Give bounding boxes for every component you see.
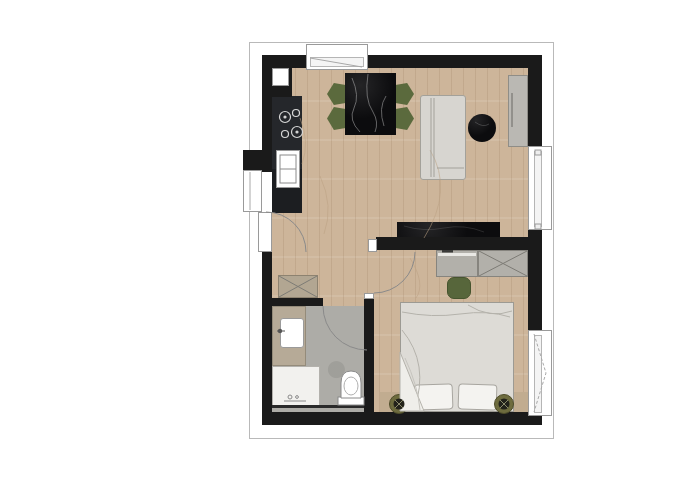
wall-right-upper	[528, 55, 542, 148]
sideboard	[508, 75, 528, 147]
living-window-sash	[534, 151, 542, 227]
left-window	[243, 170, 262, 212]
entry-door-opening	[258, 212, 272, 252]
wall-top-b	[368, 55, 542, 68]
bed-pillow	[458, 383, 498, 410]
bed-pillow	[414, 383, 454, 410]
wall-left-lower	[262, 252, 272, 412]
wall-bottom	[262, 412, 542, 425]
wardrobe	[478, 250, 528, 277]
top-window-sash	[310, 57, 364, 67]
media-bench	[397, 222, 500, 238]
door-jamb	[364, 293, 374, 299]
dining-table	[345, 73, 396, 135]
floor-plan	[0, 0, 700, 500]
top-window	[306, 44, 368, 70]
bedside-lamp	[494, 394, 514, 414]
shower	[272, 366, 320, 406]
wall-left-protrusion	[243, 150, 272, 172]
pouf	[447, 277, 471, 299]
coffee-table	[468, 114, 496, 142]
desk-top-strip	[438, 253, 476, 256]
bathroom-door-leaf	[364, 310, 372, 352]
bedside-lamp	[389, 394, 409, 414]
wall-living-bedroom	[376, 237, 528, 250]
wall-right-middle	[528, 228, 542, 330]
door-jamb	[368, 239, 377, 252]
sofa	[420, 95, 466, 180]
kitchen-sink	[276, 150, 300, 188]
bedroom-window	[528, 330, 552, 416]
utility-shaft	[272, 68, 289, 86]
washbasin	[280, 318, 304, 348]
hall-wardrobe	[278, 275, 318, 298]
living-window	[528, 146, 552, 230]
wall-bathroom-top	[262, 298, 323, 306]
bedroom-window-sash	[534, 335, 542, 413]
bathroom-bottom-line	[272, 405, 364, 408]
